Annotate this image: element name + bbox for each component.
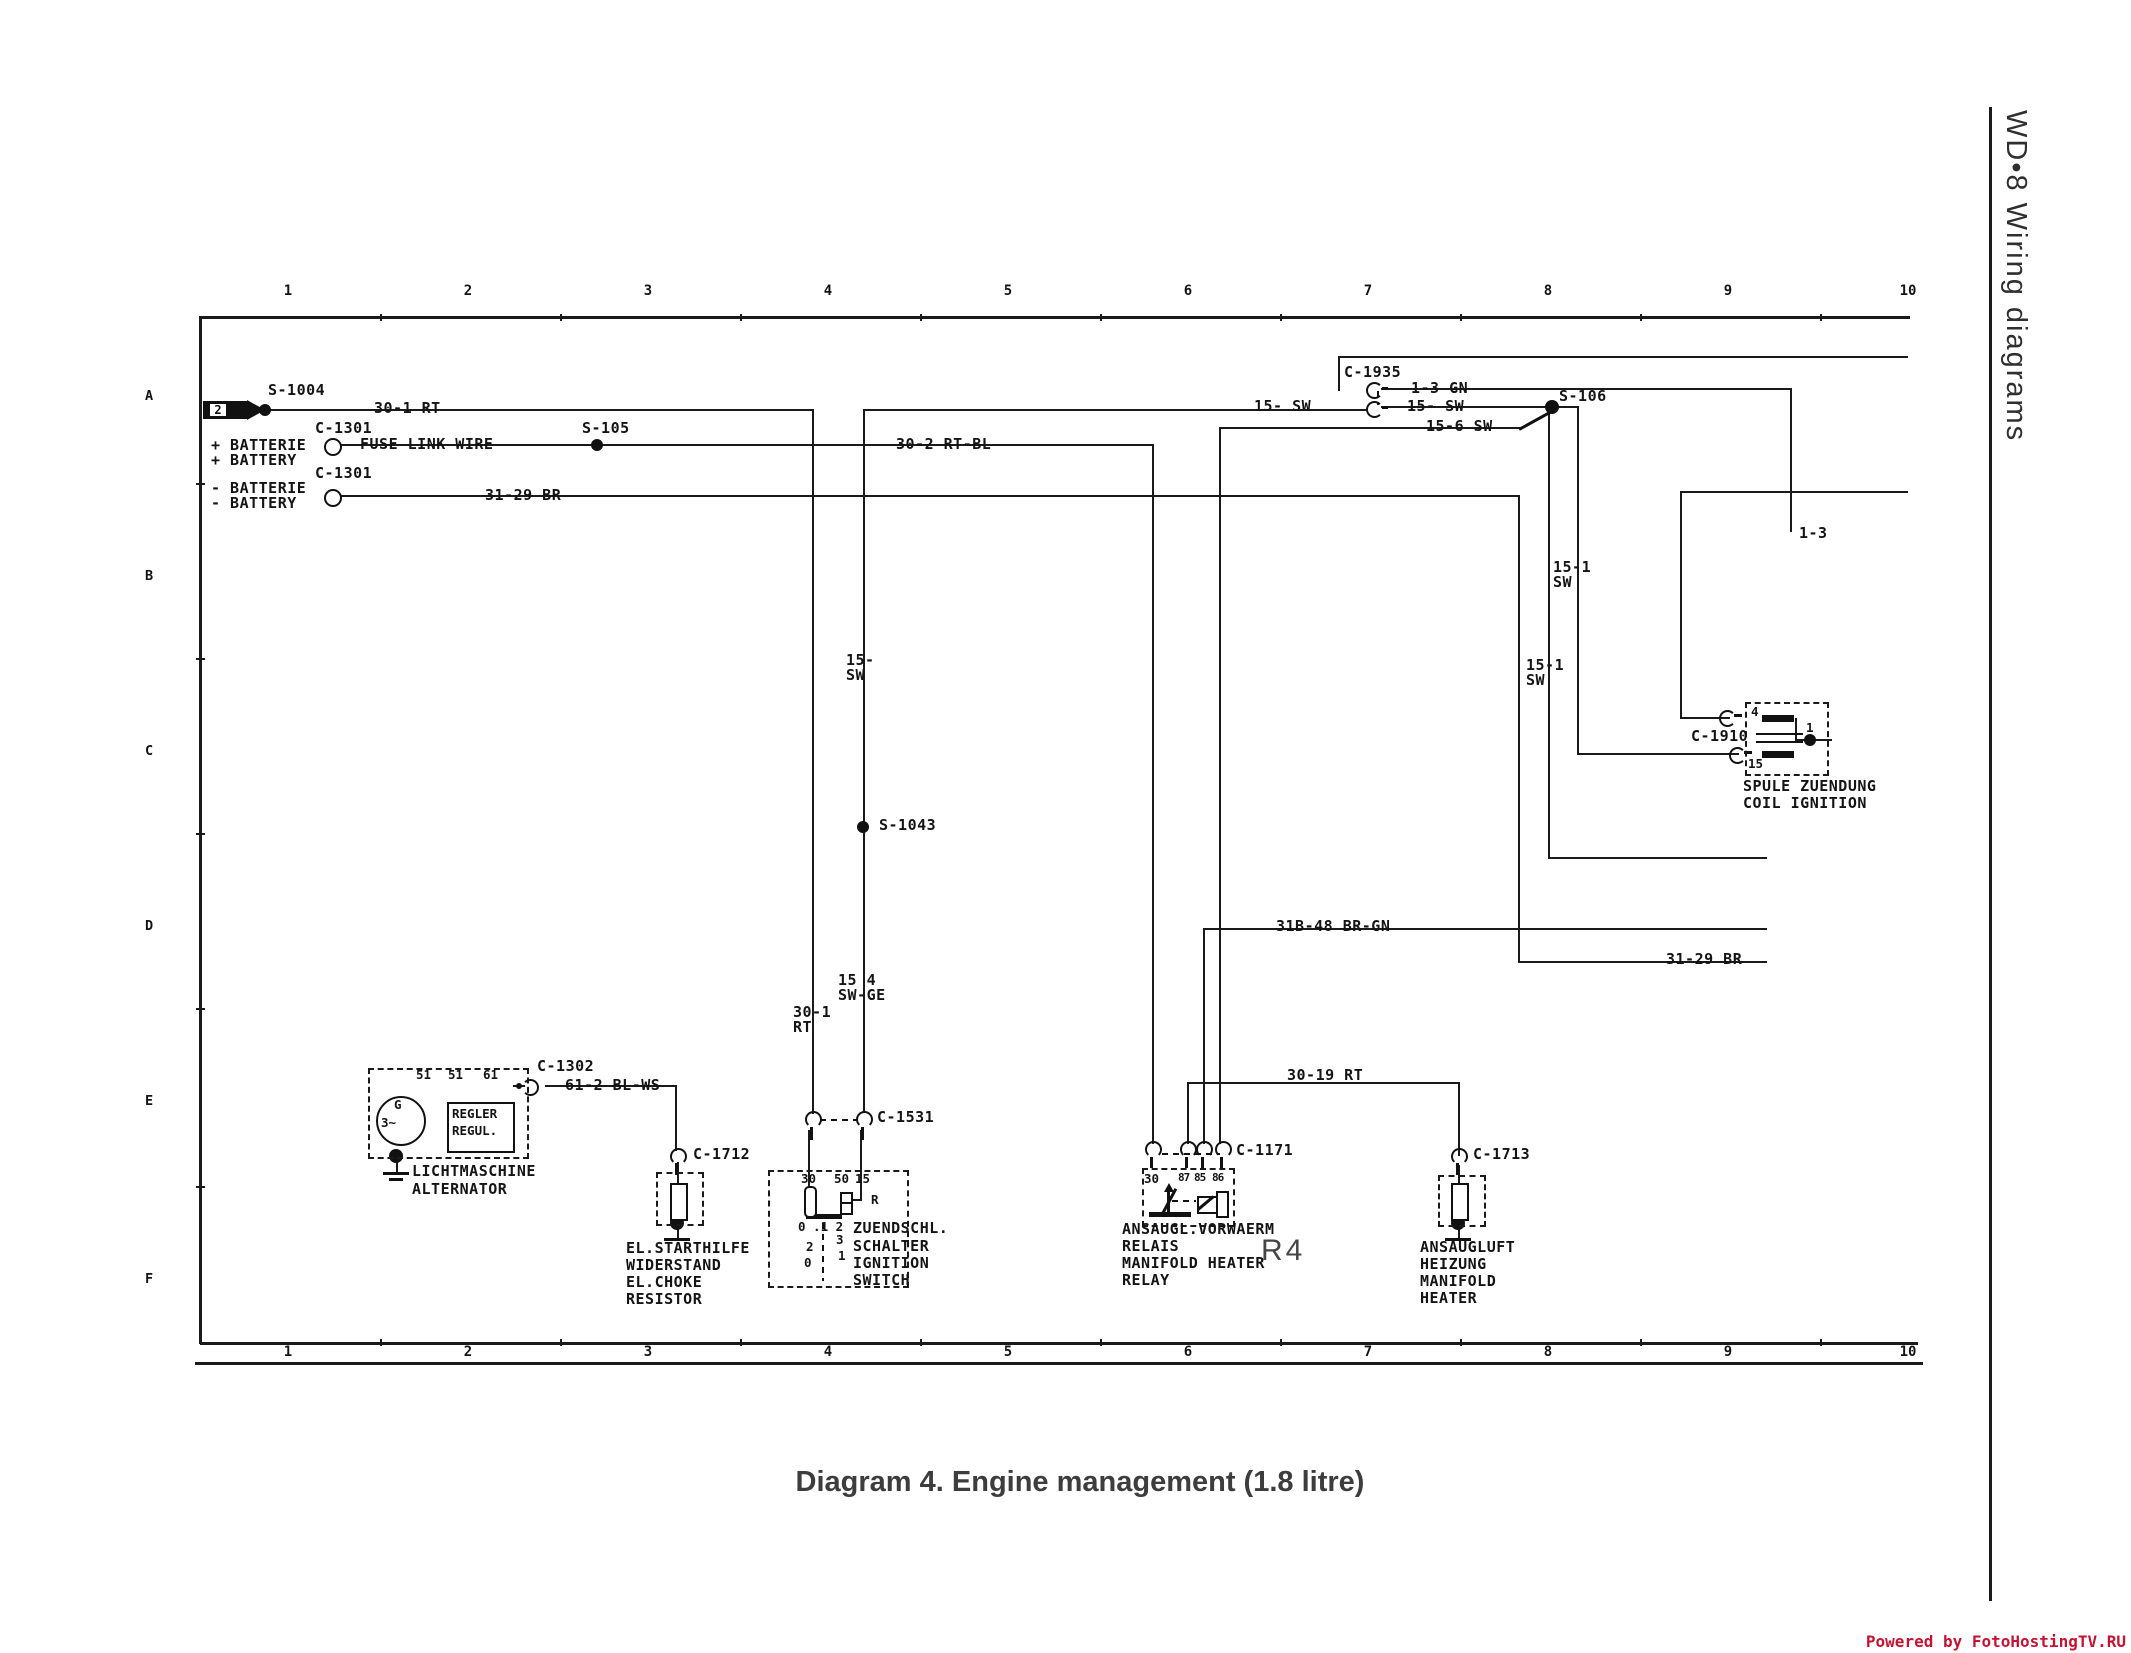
ruler-tick — [1460, 314, 1462, 321]
ruler-number-top: 5 — [996, 283, 1020, 299]
ruler-tick — [1640, 1339, 1642, 1346]
wire-label: RESISTOR — [626, 1292, 702, 1307]
wire-label: + BATTERY — [211, 453, 297, 468]
wire-segment — [1219, 427, 1221, 1144]
connector-pin-icon — [1145, 1141, 1162, 1158]
ruler-number-bottom: 6 — [1176, 1344, 1200, 1360]
wire-label: C-1301 — [315, 466, 372, 481]
symbol-bar — [861, 1127, 864, 1140]
wire-label: 51 — [448, 1068, 463, 1081]
symbol-bar — [383, 1172, 409, 1175]
wire-destination-flag: 2 — [203, 400, 265, 420]
wire-label: 15 4 SW-GE — [838, 973, 886, 1003]
ruler-number-top: 1 — [276, 283, 300, 299]
ruler-tick — [1640, 314, 1642, 321]
ruler-number-bottom: 4 — [816, 1344, 840, 1360]
ruler-number-top: 6 — [1176, 283, 1200, 299]
wire-label: G — [394, 1098, 402, 1111]
wire-segment — [1458, 1082, 1460, 1156]
ruler-tick — [196, 833, 205, 835]
symbol-bar — [1220, 1157, 1223, 1168]
ruler-tick — [560, 314, 562, 321]
ruler-tick — [196, 1008, 205, 1010]
wire-label: REGUL. — [452, 1124, 497, 1137]
wire-label: 15-6 SW — [1426, 419, 1493, 434]
ruler-number-top: 8 — [1536, 283, 1560, 299]
wire-label: 30 — [1144, 1172, 1159, 1185]
wire-label: 15-1 SW — [1526, 658, 1564, 688]
wire-label: COIL IGNITION — [1743, 796, 1867, 811]
connector-pin-icon — [1451, 1148, 1468, 1165]
wire-label: 30-2 RT-BL — [896, 437, 991, 452]
connector-pin-icon — [1366, 382, 1383, 399]
flag-number: 2 — [210, 404, 226, 416]
wire-segment — [1187, 1082, 1189, 1144]
connector-dashed-line — [1377, 391, 1379, 405]
wire-label: 30 — [801, 1172, 816, 1185]
wire-label: 3~ — [381, 1116, 396, 1129]
wire-segment — [1790, 388, 1792, 532]
frame-line — [200, 316, 1910, 319]
row-letter: B — [145, 568, 153, 584]
connector-pin-icon — [670, 1148, 687, 1165]
connector-pin-icon — [1719, 710, 1736, 727]
wire-label: EL.CHOKE — [626, 1275, 702, 1290]
ruler-number-bottom: 8 — [1536, 1344, 1560, 1360]
ruler-number-top: 10 — [1896, 283, 1920, 299]
ruler-tick — [920, 1339, 922, 1346]
ruler-tick — [1100, 1339, 1102, 1346]
wire-segment — [1338, 356, 1340, 391]
wire-label: MANIFOLD HEATER — [1122, 1256, 1265, 1271]
wire-segment — [1680, 491, 1682, 719]
ruler-number-bottom: 5 — [996, 1344, 1020, 1360]
wire-label: MANIFOLD — [1420, 1274, 1496, 1289]
symbol-bar — [1201, 1157, 1204, 1168]
wire-label: 1-3 GN — [1411, 381, 1468, 396]
wire-label: C-1301 — [315, 421, 372, 436]
wire-label: HEATER — [1420, 1291, 1477, 1306]
wire-segment — [1577, 753, 1739, 755]
wire-segment — [1338, 356, 1908, 358]
wire-label: ANSAUGLUFT — [1420, 1240, 1515, 1255]
symbol-bar — [1185, 1157, 1188, 1168]
wire-label: RELAY — [1122, 1273, 1170, 1288]
ruler-tick — [1460, 1339, 1462, 1346]
ruler-tick — [740, 314, 742, 321]
wire-label: S-1004 — [268, 383, 325, 398]
wire-segment — [1680, 491, 1908, 493]
connector-dashed-line — [820, 1119, 858, 1121]
wire-label: 30-1 RT — [793, 1005, 831, 1035]
wire-label: 15 — [855, 1172, 870, 1185]
wire-segment — [1548, 857, 1767, 859]
wire-label: C-1935 — [1344, 365, 1401, 380]
frame-line — [199, 316, 202, 1344]
connector-pin-icon — [1196, 1141, 1213, 1158]
wire-label: C-1712 — [693, 1147, 750, 1162]
wire-label: 31B-48 BR-GN — [1276, 919, 1390, 934]
component-rect — [1451, 1183, 1469, 1221]
ruler-tick — [380, 1339, 382, 1346]
wire-label: 15- SW — [1254, 399, 1311, 414]
wire-label: 87 — [1178, 1172, 1189, 1184]
ruler-tick — [196, 658, 205, 660]
wire-label: - BATTERY — [211, 496, 297, 511]
junction-dot — [259, 404, 271, 416]
junction-dot — [591, 439, 603, 451]
ruler-number-bottom: 7 — [1356, 1344, 1380, 1360]
row-letter: E — [145, 1093, 153, 1109]
wire-label: LICHTMASCHINE — [412, 1164, 536, 1179]
wire-label: 15-1 SW — [1553, 560, 1591, 590]
wire-label: S-105 — [582, 421, 630, 436]
wire-label: 15- SW — [1407, 399, 1464, 414]
wire-label: 50 — [834, 1172, 849, 1185]
wire-label: R — [871, 1193, 879, 1206]
wire-label: 31-29 BR — [485, 488, 561, 503]
wire-label: 2 — [806, 1240, 814, 1253]
ruler-tick — [560, 1339, 562, 1346]
frame-line — [195, 1362, 1923, 1365]
wire-label: 31-29 BR — [1666, 952, 1742, 967]
wire-label: IGNITION — [853, 1256, 929, 1271]
arrow-up-icon — [1164, 1183, 1174, 1192]
wiring-diagram-page: 2 Diagram 4. Engine management (1.8 litr… — [0, 0, 2131, 1653]
wire-label: 1-3 — [1799, 526, 1828, 541]
wire-label: ANSAUGL.VORWAERM — [1122, 1222, 1275, 1237]
row-letter: C — [145, 743, 153, 759]
wire-label: 0 — [804, 1256, 812, 1269]
watermark-text: Powered by FotoHostingTV.RU — [1866, 1632, 2126, 1651]
wire-label: 86 — [1212, 1172, 1223, 1184]
wire-label: C-1302 — [537, 1059, 594, 1074]
wire-segment — [1518, 495, 1520, 963]
wire-label: C-1910 — [1691, 729, 1748, 744]
connector-pin-icon — [1215, 1141, 1232, 1158]
ruler-number-bottom: 3 — [636, 1344, 660, 1360]
wire-label: FUSE LINK WIRE — [360, 437, 493, 452]
ruler-number-bottom: 10 — [1896, 1344, 1920, 1360]
wire-segment — [863, 409, 865, 1113]
ruler-number-bottom: 9 — [1716, 1344, 1740, 1360]
ruler-number-top: 9 — [1716, 283, 1740, 299]
ruler-tick — [196, 1186, 205, 1188]
ruler-tick — [1280, 314, 1282, 321]
wire-label: WIDERSTAND — [626, 1258, 721, 1273]
wire-label: EL.STARTHILFE — [626, 1241, 750, 1256]
wire-label: 85 — [1194, 1172, 1205, 1184]
wire-label: SPULE ZUENDUNG — [1743, 779, 1876, 794]
connector-pin-icon — [856, 1111, 873, 1128]
ruler-number-bottom: 2 — [456, 1344, 480, 1360]
component-rect — [840, 1202, 853, 1215]
ruler-tick — [380, 314, 382, 321]
diagram-caption: Diagram 4. Engine management (1.8 litre) — [700, 1466, 1460, 1499]
contact-oval — [804, 1186, 817, 1218]
row-letter: A — [145, 388, 153, 404]
wire-label: 30-1 RT — [374, 401, 441, 416]
wire-label: 15 — [1748, 757, 1763, 770]
wire-label: 4 — [1751, 705, 1759, 718]
connector-circle — [324, 489, 342, 507]
wire-segment — [1548, 406, 1550, 859]
wire-label: 61-2 BL-WS — [565, 1078, 660, 1093]
ruler-number-top: 4 — [816, 283, 840, 299]
symbol-bar — [389, 1178, 403, 1181]
wire-label: ZUENDSCHL. — [853, 1221, 948, 1236]
wire-label: 15- SW — [846, 653, 875, 683]
ruler-tick — [740, 1339, 742, 1346]
wire-segment — [1152, 444, 1154, 1144]
wire-label: 61 — [483, 1068, 498, 1081]
row-letter: F — [145, 1271, 153, 1287]
wire-label: 1 — [838, 1249, 846, 1262]
ruler-number-bottom: 1 — [276, 1344, 300, 1360]
wire-label: REGLER — [452, 1107, 497, 1120]
connector-dashed-line — [1162, 1153, 1220, 1155]
ruler-tick — [1100, 314, 1102, 321]
wire-label: 1 — [1806, 721, 1814, 734]
wire-label: 3 — [836, 1233, 844, 1246]
ruler-tick — [1280, 1339, 1282, 1346]
wire-label: C-1171 — [1236, 1143, 1293, 1158]
connector-pin-icon — [1729, 747, 1746, 764]
ruler-tick — [1820, 1339, 1822, 1346]
wire-label: R4 — [1261, 1236, 1305, 1266]
connector-circle — [324, 438, 342, 456]
wire-label: SWITCH — [853, 1273, 910, 1288]
symbol-bar — [1150, 1157, 1153, 1168]
wire-label: 30-19 RT — [1287, 1068, 1363, 1083]
connector-pin-icon — [1180, 1141, 1197, 1158]
wire-label: ALTERNATOR — [412, 1182, 507, 1197]
wire-label: S-1043 — [879, 818, 936, 833]
wire-label: RELAIS — [1122, 1239, 1179, 1254]
row-letter: D — [145, 918, 153, 934]
ruler-number-top: 3 — [636, 283, 660, 299]
wire-label: C-1531 — [877, 1110, 934, 1125]
junction-dot — [857, 821, 869, 833]
wire-segment — [675, 1085, 677, 1151]
ruler-tick — [920, 314, 922, 321]
ruler-tick — [196, 483, 205, 485]
component-rect — [670, 1183, 688, 1221]
connector-pin-icon — [1366, 401, 1383, 418]
symbol-bar — [810, 1127, 813, 1140]
ruler-tick — [1820, 314, 1822, 321]
wire-label: S-106 — [1559, 389, 1607, 404]
page-side-title: WD•8 Wiring diagrams — [1999, 110, 2032, 442]
wire-label: SCHALTER — [853, 1239, 929, 1254]
wire-label: 51 — [416, 1068, 431, 1081]
wire-label: C-1713 — [1473, 1147, 1530, 1162]
wire-segment — [1203, 928, 1205, 1144]
ruler-number-top: 2 — [456, 283, 480, 299]
wire-segment — [265, 409, 812, 411]
frame-line — [1989, 107, 1992, 1601]
ruler-number-top: 7 — [1356, 283, 1380, 299]
wire-label: HEIZUNG — [1420, 1257, 1487, 1272]
